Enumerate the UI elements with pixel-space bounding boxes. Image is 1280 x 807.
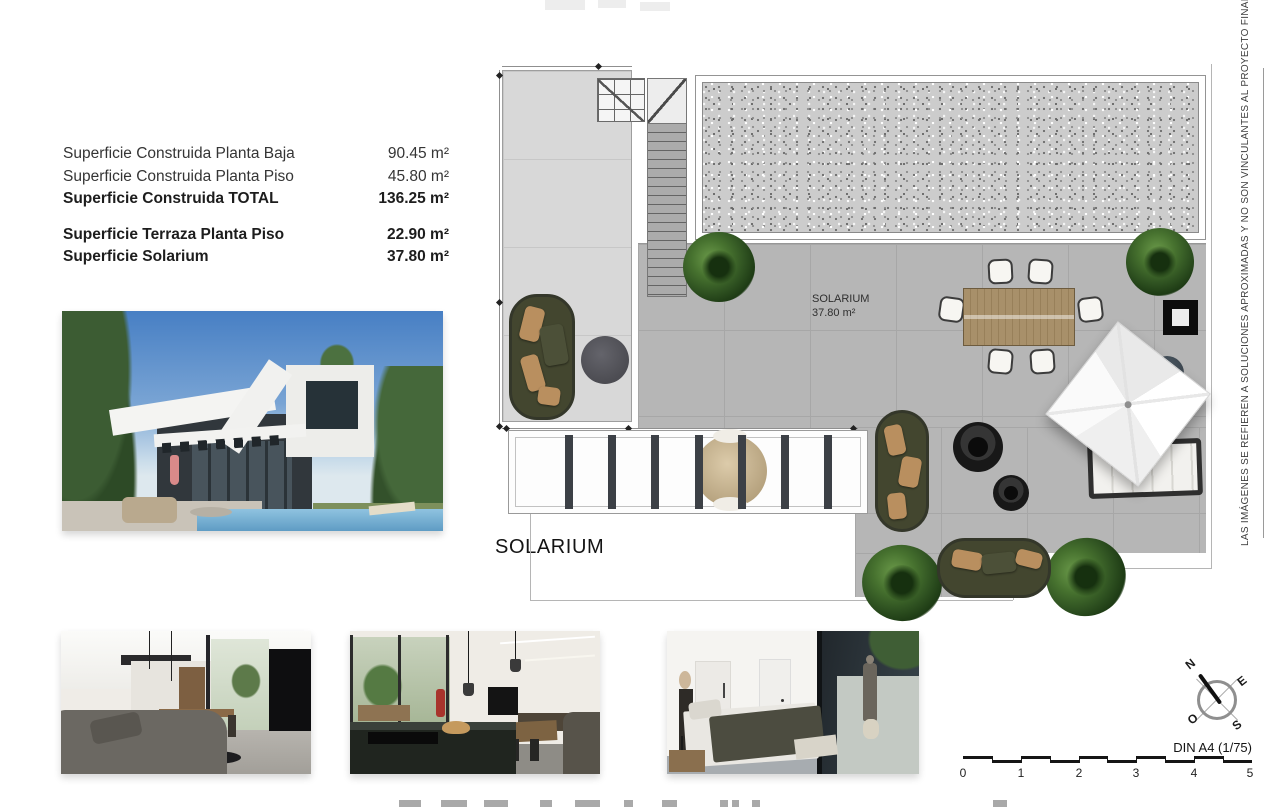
decor-shape bbox=[463, 683, 474, 696]
decor-shape bbox=[350, 722, 516, 730]
scale-bar bbox=[963, 756, 1252, 763]
scale-segment bbox=[992, 756, 1021, 763]
scale-tick: 4 bbox=[1191, 766, 1198, 780]
decor-shape bbox=[781, 699, 784, 702]
decor-shape bbox=[563, 712, 600, 774]
sofa bbox=[875, 410, 929, 532]
cropped-text-artifact bbox=[441, 800, 467, 807]
pergola-roof bbox=[508, 430, 868, 514]
side-table bbox=[581, 336, 629, 384]
decor-shape bbox=[669, 750, 705, 772]
decor-shape bbox=[525, 655, 595, 662]
decor-shape bbox=[368, 732, 438, 744]
pouf-table bbox=[953, 422, 1003, 472]
decor-shape bbox=[171, 631, 172, 681]
scale-segment bbox=[1165, 756, 1194, 763]
cropped-text-artifact bbox=[752, 800, 760, 807]
decor-shape bbox=[436, 689, 445, 717]
scale-segment bbox=[1050, 756, 1079, 763]
plan-sheet-page: Superficie Construida Planta Baja 90.45 … bbox=[0, 0, 1280, 807]
scale-tick: 0 bbox=[960, 766, 967, 780]
interior-photo-bedroom bbox=[667, 631, 919, 774]
cropped-text-artifact bbox=[575, 800, 600, 807]
decor-shape bbox=[149, 631, 150, 669]
pergola-slat bbox=[781, 435, 789, 509]
decor-shape bbox=[61, 710, 227, 774]
chair bbox=[987, 348, 1014, 375]
legal-disclaimer: LAS IMÁGENES SE REFIEREN A SOLUCIONES AP… bbox=[1240, 64, 1256, 546]
cropped-text-artifact bbox=[484, 800, 508, 807]
pergola-slat bbox=[695, 435, 703, 509]
scale-segment bbox=[1079, 756, 1108, 763]
pergola-slat bbox=[738, 435, 746, 509]
interior-photo-kitchen bbox=[350, 631, 600, 774]
scale-segment bbox=[1223, 756, 1252, 763]
decor-shape bbox=[510, 659, 521, 672]
plant bbox=[683, 232, 755, 302]
dimension-line-horizontal bbox=[502, 428, 858, 429]
scale-segment bbox=[1107, 756, 1136, 763]
scale-tick: 2 bbox=[1076, 766, 1083, 780]
cropped-text-artifact bbox=[662, 800, 677, 807]
scale-segment bbox=[1136, 756, 1165, 763]
staircase-top bbox=[647, 78, 687, 124]
plan-outline bbox=[530, 600, 1013, 601]
scale-label: DIN A4 (1/75) bbox=[963, 740, 1252, 755]
plan-outline bbox=[1211, 64, 1212, 568]
plan-outline bbox=[530, 514, 531, 600]
decor-shape bbox=[863, 663, 877, 721]
decor-shape bbox=[442, 721, 470, 734]
decor-shape bbox=[269, 649, 311, 731]
skylight-box bbox=[1163, 300, 1198, 335]
compass-south-label: S bbox=[1230, 717, 1245, 733]
scale-tick: 1 bbox=[1018, 766, 1025, 780]
room-area: 37.80 m² bbox=[812, 307, 869, 321]
decor-shape bbox=[229, 661, 263, 701]
chair bbox=[1027, 258, 1054, 285]
compass-rose: N E O S bbox=[1180, 650, 1260, 740]
decor-shape bbox=[515, 631, 516, 659]
cropped-text-artifact bbox=[720, 800, 728, 807]
decor-shape bbox=[468, 631, 469, 683]
room-label: SOLARIUM 37.80 m² bbox=[812, 293, 869, 320]
scale-segment bbox=[1021, 756, 1050, 763]
decor-shape bbox=[679, 671, 691, 689]
chair bbox=[987, 258, 1013, 284]
interior-photo-living bbox=[61, 631, 311, 774]
decor-shape bbox=[866, 655, 874, 664]
compass-north-label: N bbox=[1183, 656, 1198, 672]
scale-tick: 3 bbox=[1133, 766, 1140, 780]
scale-segment bbox=[963, 756, 992, 763]
decor-shape bbox=[863, 719, 879, 739]
pouf-table bbox=[993, 475, 1029, 511]
cropped-text-artifact bbox=[540, 800, 552, 807]
pergola-slat bbox=[824, 435, 832, 509]
compass-east-label: E bbox=[1235, 673, 1250, 689]
decor-shape bbox=[723, 683, 725, 698]
cropped-text-artifact bbox=[732, 800, 739, 807]
decor-shape bbox=[681, 736, 683, 750]
divider bbox=[1263, 68, 1264, 538]
chair bbox=[937, 295, 965, 323]
pergola-slat bbox=[565, 435, 573, 509]
chair bbox=[1029, 348, 1056, 375]
cropped-text-artifact bbox=[399, 800, 421, 807]
dimension-line-vertical bbox=[499, 70, 500, 429]
sofa bbox=[509, 294, 575, 420]
dining-table bbox=[963, 288, 1075, 346]
cropped-text-artifact bbox=[993, 800, 1007, 807]
pergola-slat bbox=[651, 435, 659, 509]
gravel-roof bbox=[702, 82, 1199, 233]
pergola-slat bbox=[608, 435, 616, 509]
sofa bbox=[937, 538, 1051, 598]
dimension-arrow bbox=[595, 63, 602, 70]
scale-segment bbox=[1194, 756, 1223, 763]
cropped-text-artifact bbox=[624, 800, 633, 807]
compass-west-label: O bbox=[1185, 711, 1201, 728]
room-name: SOLARIUM bbox=[812, 293, 869, 307]
dimension-line-top bbox=[502, 66, 632, 67]
stair-landing bbox=[597, 78, 645, 122]
decor-shape bbox=[488, 687, 518, 715]
scale-tick: 5 bbox=[1247, 766, 1254, 780]
chair bbox=[1077, 296, 1105, 324]
decor-shape bbox=[358, 705, 410, 721]
